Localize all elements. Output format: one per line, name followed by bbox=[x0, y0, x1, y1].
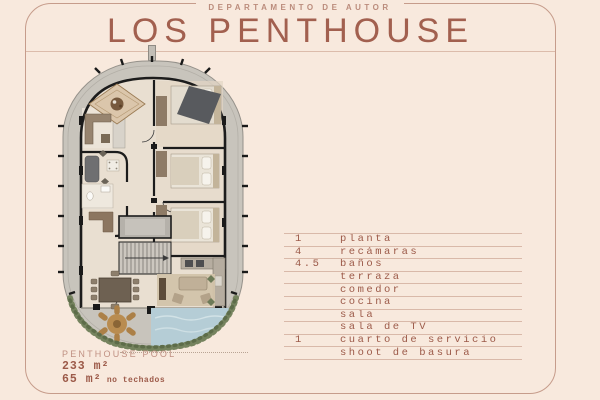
feature-label: sala de TV bbox=[340, 322, 522, 333]
feature-qty: 4.5 bbox=[284, 259, 340, 270]
area-open-note: no techados bbox=[102, 376, 166, 385]
feature-row: cocina bbox=[284, 297, 522, 310]
page-title: LOS PENTHOUSE bbox=[25, 13, 556, 49]
plan-footer: PENTHOUSE POOL 233 m² 65 m² no techados bbox=[62, 348, 176, 387]
feature-label: cocina bbox=[340, 297, 522, 308]
feature-row: sala de TV bbox=[284, 322, 522, 335]
feature-qty: 1 bbox=[284, 335, 340, 346]
bathroom bbox=[82, 184, 113, 208]
plan-name: PENTHOUSE POOL bbox=[62, 348, 176, 360]
feature-qty: 4 bbox=[284, 247, 340, 258]
feature-qty: 1 bbox=[284, 234, 340, 245]
header-divider bbox=[26, 51, 555, 52]
feature-row: terraza bbox=[284, 272, 522, 285]
feature-row: sala bbox=[284, 310, 522, 323]
feature-label: recámaras bbox=[340, 247, 522, 258]
feature-row: 1 cuarto de servicio bbox=[284, 335, 522, 348]
bed-two bbox=[171, 154, 219, 188]
bed-three bbox=[171, 208, 219, 242]
feature-label: planta bbox=[340, 234, 522, 245]
brochure-page: DEPARTAMENTO DE AUTOR LOS PENTHOUSE bbox=[0, 0, 600, 400]
feature-row: 4.5 baños bbox=[284, 259, 522, 272]
feature-label: shoot de basura bbox=[340, 348, 522, 359]
feature-row: comedor bbox=[284, 284, 522, 297]
sala bbox=[157, 274, 215, 306]
area-open: 65 m² no techados bbox=[62, 373, 176, 387]
elevator bbox=[119, 216, 171, 238]
feature-label: cuarto de servicio bbox=[340, 335, 522, 346]
feature-row: 1 planta bbox=[284, 234, 522, 247]
feature-label: terraza bbox=[340, 272, 522, 283]
area-open-value: 65 m² bbox=[62, 373, 102, 386]
features-list: 1 planta 4 recámaras 4.5 baños terraza c… bbox=[284, 233, 522, 360]
feature-label: sala bbox=[340, 310, 522, 321]
feature-row: shoot de basura bbox=[284, 347, 522, 360]
feature-row: 4 recámaras bbox=[284, 247, 522, 260]
stairs bbox=[119, 242, 171, 274]
bed-master bbox=[171, 86, 221, 124]
area-total: 233 m² bbox=[62, 360, 176, 373]
feature-label: baños bbox=[340, 259, 522, 270]
feature-label: comedor bbox=[340, 285, 522, 296]
floorplan-image bbox=[55, 56, 251, 352]
